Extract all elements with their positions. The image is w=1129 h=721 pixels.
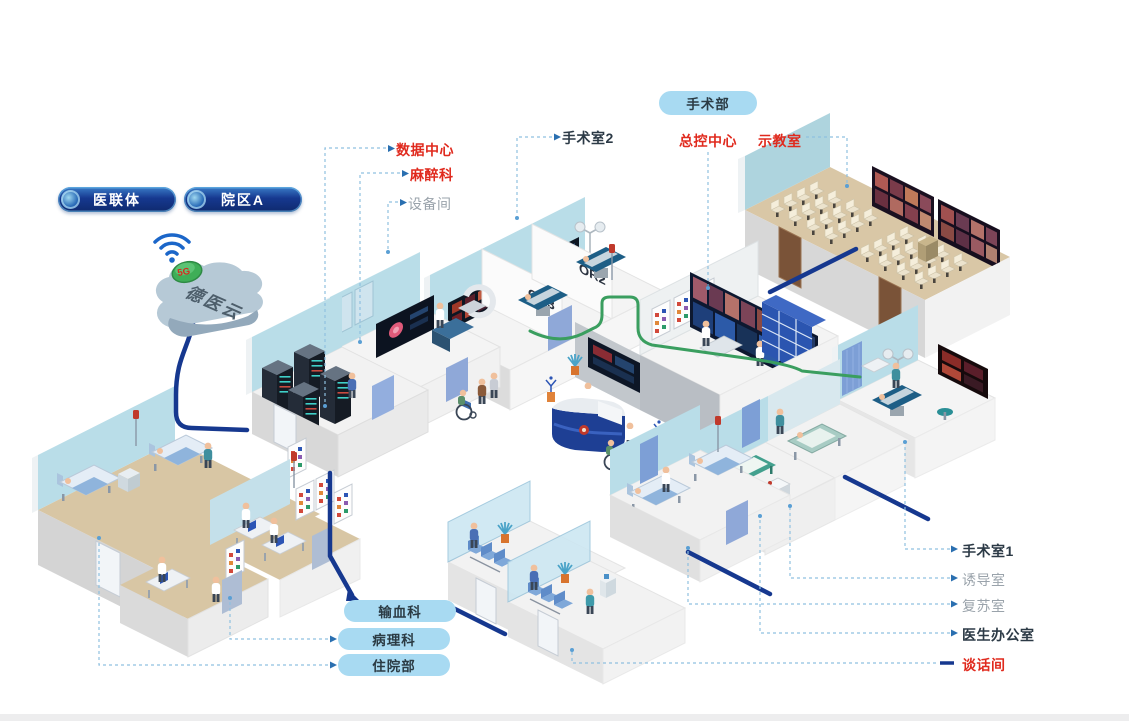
- pill-blood-transfusion-label: 输血科: [378, 601, 422, 621]
- pill-blood-transfusion-dept[interactable]: 输血科: [344, 600, 456, 622]
- callout-demo-classroom: 示教室: [758, 131, 802, 151]
- pill-surgery-department[interactable]: 手术部: [659, 91, 757, 115]
- pill-pathology-label: 病理科: [372, 629, 416, 649]
- pill-inpatient-dept[interactable]: 住院部: [338, 654, 450, 676]
- cloud-icon[interactable]: 德医云 5G: [156, 259, 263, 337]
- 5g-badge-label: 5G: [177, 266, 191, 279]
- callout-doctors-office: 医生办公室: [962, 625, 1035, 645]
- callout-operating-room-2: 手术室2: [562, 128, 614, 148]
- pill-medical-alliance-label: 医联体: [93, 190, 141, 210]
- callout-induction-room: 诱导室: [962, 570, 1006, 590]
- pill-medical-alliance[interactable]: 医联体: [58, 187, 176, 212]
- pill-inpatient-label: 住院部: [372, 655, 416, 675]
- isometric-hospital-illustration: OR3 OR2: [0, 0, 1129, 721]
- callout-operating-room-1: 手术室1: [962, 541, 1014, 561]
- hospital-smart-or-diagram: OR3 OR2: [0, 0, 1129, 721]
- callout-master-control-center: 总控中心: [679, 131, 737, 151]
- pill-campus-a-label: 院区A: [221, 190, 265, 210]
- bottom-edge-strip: [0, 714, 1129, 721]
- callout-equipment-room: 设备间: [408, 194, 452, 214]
- wifi-icon: [155, 235, 189, 263]
- pill-campus-a[interactable]: 院区A: [184, 187, 302, 212]
- pill-surgery-department-label: 手术部: [686, 93, 730, 113]
- callout-data-center: 数据中心: [396, 140, 454, 160]
- callout-anesthesiology: 麻醉科: [410, 165, 454, 185]
- callout-recovery-room: 复苏室: [962, 596, 1006, 616]
- callout-talk-room: 谈话间: [962, 655, 1006, 675]
- pill-pathology-dept[interactable]: 病理科: [338, 628, 450, 650]
